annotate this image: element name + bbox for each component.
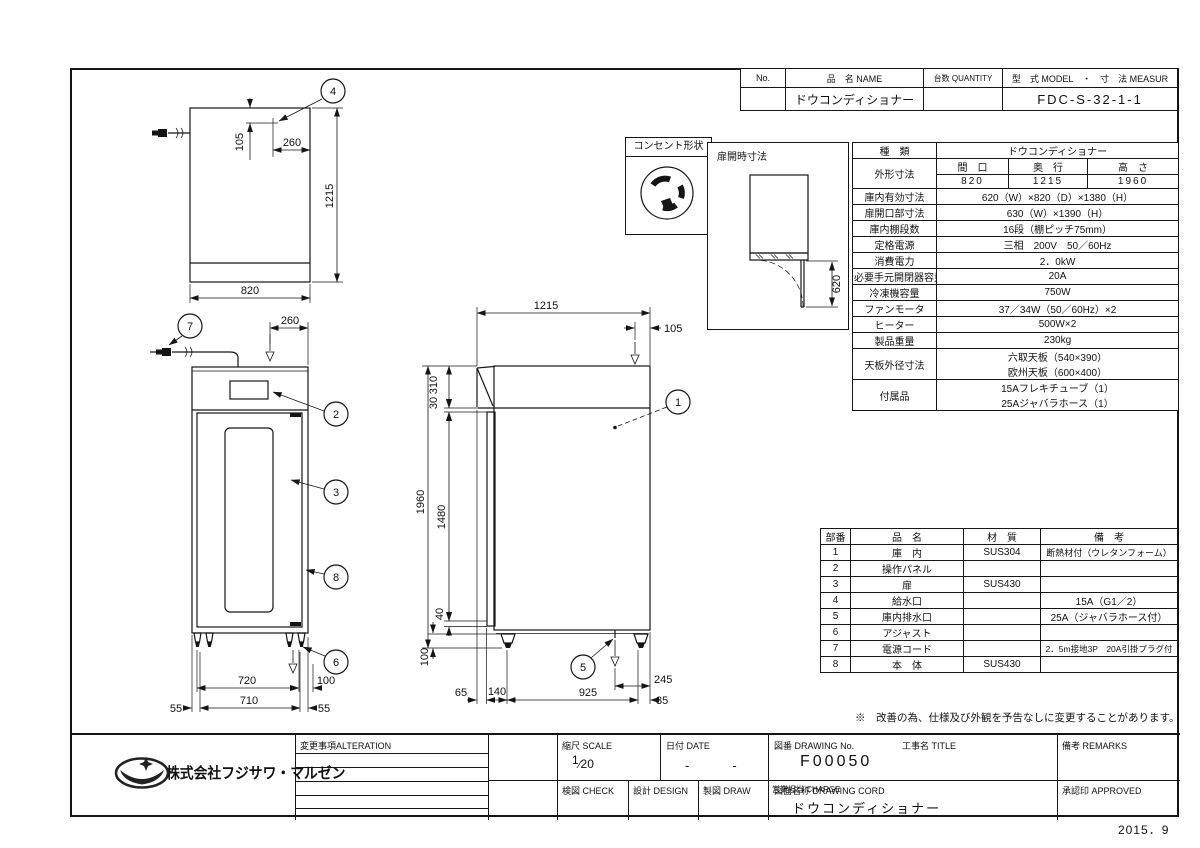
parts-table: 部番 品 名 材 質 備 考 1庫 内SUS304断熱材付（ウレタンフォーム） … (820, 528, 1178, 673)
date-value: - - (685, 755, 738, 774)
spec-sub-header: 間 口 (937, 159, 1009, 175)
parts-header: 部番 (821, 529, 851, 545)
parts-header-row: 部番 品 名 材 質 備 考 (821, 529, 1178, 545)
spec-label: 冷凍機容量 (853, 285, 937, 301)
spec-value: 1960 (1088, 175, 1179, 189)
part-material (964, 641, 1041, 657)
model-header: 型 式 MODEL ・ 寸 法 MEASUR (1003, 69, 1178, 88)
drawing-no-value: F00050 (800, 753, 872, 771)
spec-label: 製品重量 (853, 333, 937, 349)
part-name: 操作パネル (851, 561, 964, 577)
part-remark (1041, 577, 1178, 593)
spec-value: 750W (937, 285, 1179, 301)
spec-label: 扉開口部寸法 (853, 205, 937, 221)
outlet-shape-box: コンセント形状 (625, 137, 712, 235)
spec-label: 庫内有効寸法 (853, 189, 937, 205)
table-row: 7電源コード2．5m接地3P 20A引掛プラグ付 (821, 641, 1178, 657)
qty-value (924, 88, 1003, 111)
spec-value: 六取天板（540×390） 欧州天板（600×400） (937, 349, 1179, 380)
part-remark: 2．5m接地3P 20A引掛プラグ付 (1041, 641, 1178, 657)
part-no: 5 (821, 609, 851, 625)
spec-value: 630（W）×1390（H） (937, 205, 1179, 221)
date-label: 日付 DATE (666, 739, 710, 752)
spec-label: 天板外径寸法 (853, 349, 937, 380)
part-no: 4 (821, 593, 851, 609)
spec-value: 1215 (1009, 175, 1088, 189)
outlet-shape-title: コンセント形状 (626, 138, 711, 157)
scale-value: 1⁄20 (572, 753, 594, 771)
scale-label: 縮尺 SCALE (562, 739, 612, 752)
part-name: 庫内排水口 (851, 609, 964, 625)
check-label: 検図 CHECK (562, 784, 614, 797)
spec-label: ファンモータ (853, 301, 937, 317)
company-name: 株式会社フジサワ・マルゼン (166, 762, 345, 783)
part-name: 扉 (851, 577, 964, 593)
spec-value: 37／34W（50／60Hz）×2 (937, 301, 1179, 317)
part-no: 1 (821, 545, 851, 561)
spec-value: 20A (937, 269, 1179, 285)
drawing-no-label: 図番 DRAWING No. (774, 739, 854, 752)
part-no: 6 (821, 625, 851, 641)
parts-header: 品 名 (851, 529, 964, 545)
alteration-label: 変更事項ALTERATION (300, 739, 391, 752)
part-remark (1041, 657, 1178, 673)
table-row: 8本 体SUS430 (821, 657, 1178, 673)
name-header: 品 名 NAME (786, 69, 924, 88)
spec-label: 消費電力 (853, 253, 937, 269)
part-no: 3 (821, 577, 851, 593)
part-material: SUS430 (964, 657, 1041, 673)
part-remark: 断熱材付（ウレタンフォーム） (1041, 545, 1178, 561)
table-row: 2操作パネル (821, 561, 1178, 577)
spec-label: 種 類 (853, 143, 937, 159)
spec-value: ドウコンディショナー (937, 143, 1179, 159)
table-row: 6アジャスト (821, 625, 1178, 641)
part-material (964, 625, 1041, 641)
spec-label: 定格電源 (853, 237, 937, 253)
no-header: No. (741, 69, 786, 88)
part-remark (1041, 561, 1178, 577)
drawing-name-value: ドウコンディショナー (792, 798, 941, 817)
part-name: 給水口 (851, 593, 964, 609)
qty-header: 台数 QUANTITY (924, 69, 1003, 88)
model-value: FDC-S-32-1-1 (1003, 88, 1178, 111)
spec-value: 16段（棚ピッチ75mm） (937, 221, 1179, 237)
spec-value: 三相 200V 50／60Hz (937, 237, 1179, 253)
spec-table: 種 類 ドウコンディショナー 外形寸法 間 口 奥 行 高 さ 820 1215… (852, 142, 1179, 411)
nameplate-header-row: No. 品 名 NAME 台数 QUANTITY 型 式 MODEL ・ 寸 法… (741, 69, 1178, 88)
spec-sub-header: 高 さ (1088, 159, 1179, 175)
part-name: 本 体 (851, 657, 964, 673)
spec-label: ヒーター (853, 317, 937, 333)
parts-header: 材 質 (964, 529, 1041, 545)
worksite-title-label: 工事名 TITLE (902, 739, 956, 752)
product-name: ドウコンディショナー (786, 88, 924, 111)
part-material: SUS304 (964, 545, 1041, 561)
drawing-sheet: No. 品 名 NAME 台数 QUANTITY 型 式 MODEL ・ 寸 法… (0, 0, 1200, 848)
nameplate-table: No. 品 名 NAME 台数 QUANTITY 型 式 MODEL ・ 寸 法… (740, 68, 1178, 111)
part-name: 庫 内 (851, 545, 964, 561)
part-material (964, 561, 1041, 577)
spec-value: 620（W）×820（D）×1380（H） (937, 189, 1179, 205)
door-open-box: 扉開時寸法 (707, 142, 849, 330)
part-name: 電源コード (851, 641, 964, 657)
spec-label: 付属品 (853, 380, 937, 411)
spec-value: 2．0kW (937, 253, 1179, 269)
spec-label: 庫内棚段数 (853, 221, 937, 237)
part-material: SUS430 (964, 577, 1041, 593)
spec-value-line: 六取天板（540×390） (938, 349, 1177, 364)
approved-label: 承認印 APPROVED (1062, 784, 1142, 797)
part-name: アジャスト (851, 625, 964, 641)
part-material (964, 609, 1041, 625)
no-value (741, 88, 786, 111)
part-remark: 25A（ジャバラホース付） (1041, 609, 1178, 625)
spec-value: 15Aフレキチューブ（1） 25Aジャバラホース（1） (937, 380, 1179, 411)
spec-value-line: 15Aフレキチューブ（1） (938, 380, 1177, 395)
part-material (964, 593, 1041, 609)
table-row: 4給水口15A（G1／2） (821, 593, 1178, 609)
table-row: 1庫 内SUS304断熱材付（ウレタンフォーム） (821, 545, 1178, 561)
table-row: 5庫内排水口25A（ジャバラホース付） (821, 609, 1178, 625)
part-remark: 15A（G1／2） (1041, 593, 1178, 609)
door-open-title: 扉開時寸法 (708, 143, 848, 163)
spec-value-line: 欧州天板（600×400） (938, 364, 1177, 379)
scale-denominator: 20 (581, 757, 594, 771)
part-no: 8 (821, 657, 851, 673)
design-label: 設計 DESIGN (633, 784, 688, 797)
drawing-name-label: 図面名称 DRAWING CORD (774, 784, 885, 797)
nameplate-value-row: ドウコンディショナー FDC-S-32-1-1 (741, 88, 1178, 111)
draw-label: 製図 DRAW (703, 784, 751, 797)
table-row: 3扉SUS430 (821, 577, 1178, 593)
part-no: 2 (821, 561, 851, 577)
parts-header: 備 考 (1041, 529, 1178, 545)
spec-value-line: 25Aジャバラホース（1） (938, 395, 1177, 410)
spec-value: 500W×2 (937, 317, 1179, 333)
part-no: 7 (821, 641, 851, 657)
spec-value: 230kg (937, 333, 1179, 349)
spec-sub-header: 奥 行 (1009, 159, 1088, 175)
part-remark (1041, 625, 1178, 641)
disclaimer-note: ※ 改善の為、仕様及び外観を予告なしに変更することがあります。 (855, 710, 1179, 725)
spec-value: 820 (937, 175, 1009, 189)
spec-label: 外形寸法 (853, 159, 937, 189)
remarks-label: 備考 REMARKS (1062, 739, 1127, 752)
spec-label: 必要手元開閉器容量 (853, 269, 937, 285)
scale-numerator: 1 (572, 753, 579, 767)
date-stamp: 2015．9 (1118, 821, 1169, 838)
title-block: 株式会社フジサワ・マルゼン 変更事項ALTERATION 縮尺 SCALE 1⁄… (70, 733, 1180, 820)
